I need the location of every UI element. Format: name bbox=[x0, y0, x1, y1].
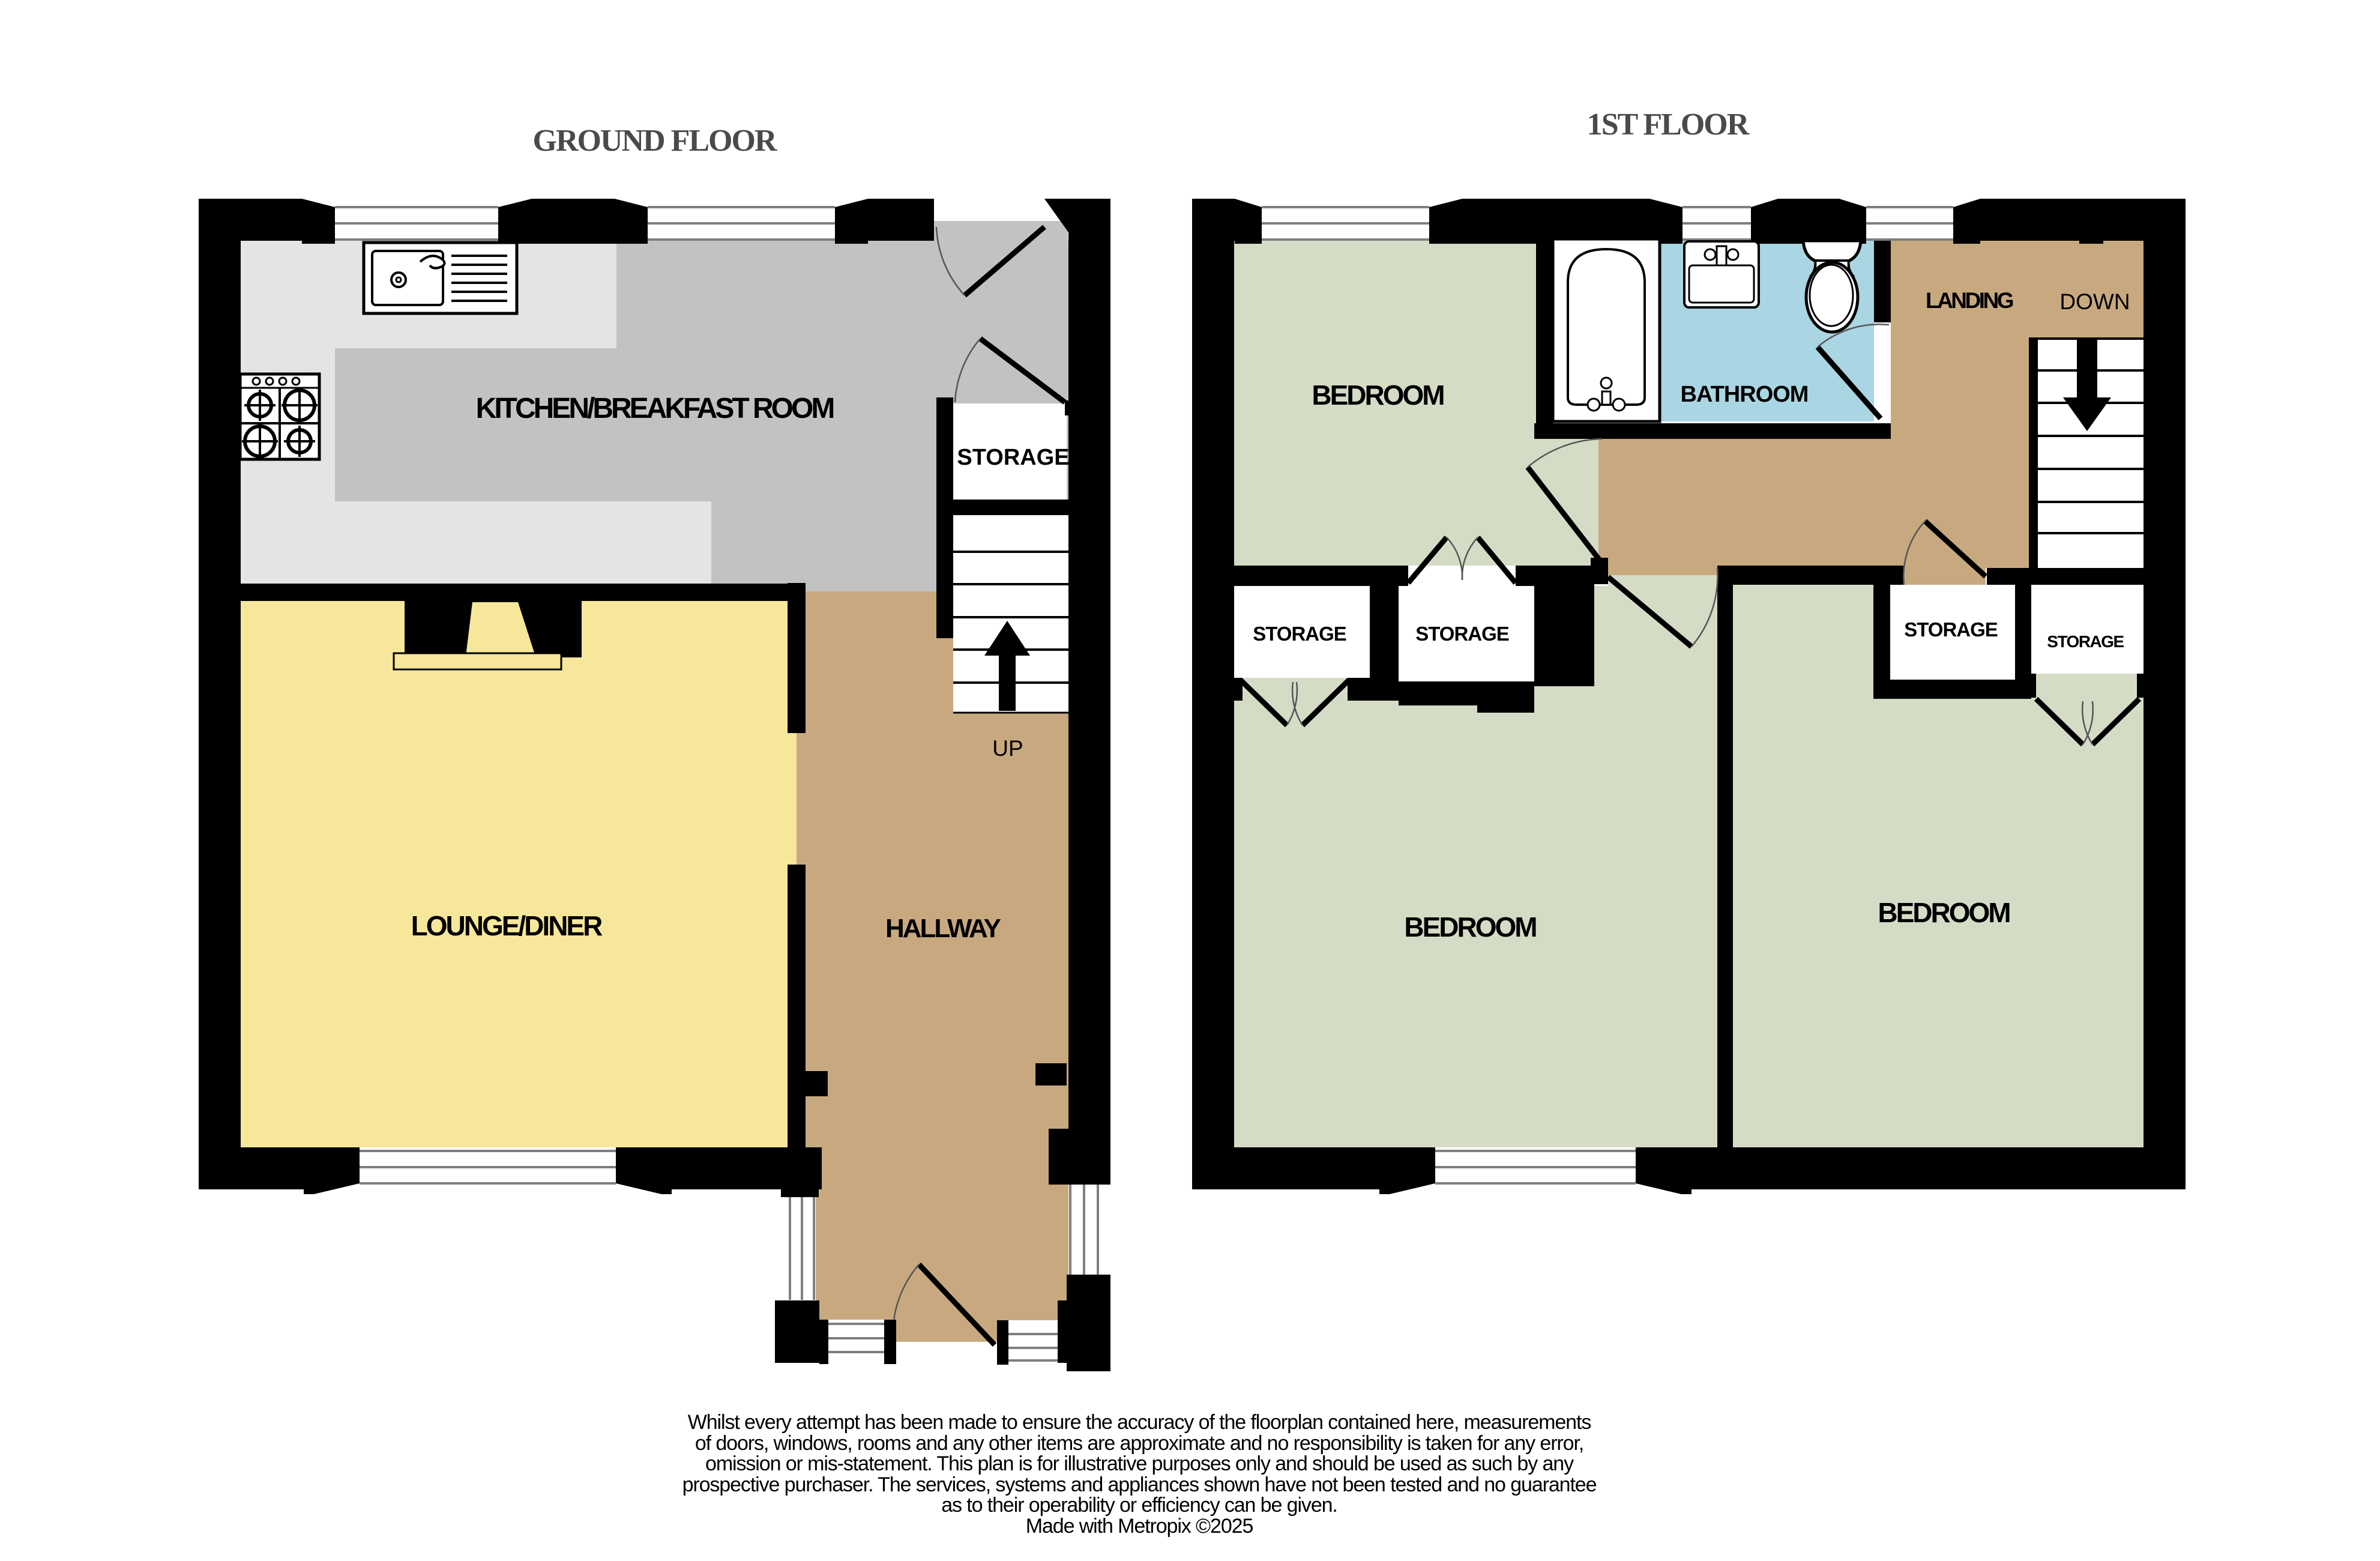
svg-text:as to their operability or eff: as to their operability or efficiency ca… bbox=[941, 1494, 1337, 1517]
svg-text:prospective purchaser. The ser: prospective purchaser. The services, sys… bbox=[682, 1473, 1597, 1496]
svg-text:LOUNGE/DINER: LOUNGE/DINER bbox=[411, 910, 603, 941]
svg-text:Made with Metropix ©2025: Made with Metropix ©2025 bbox=[1026, 1515, 1253, 1538]
svg-text:STORAGE: STORAGE bbox=[1904, 618, 1998, 641]
svg-text:STORAGE: STORAGE bbox=[1253, 623, 1346, 645]
svg-text:BEDROOM: BEDROOM bbox=[1404, 911, 1536, 943]
svg-text:BATHROOM: BATHROOM bbox=[1681, 382, 1809, 407]
svg-text:UP: UP bbox=[992, 736, 1023, 761]
svg-text:STORAGE: STORAGE bbox=[2047, 632, 2124, 651]
svg-text:1ST FLOOR: 1ST FLOOR bbox=[1587, 107, 1750, 142]
svg-text:DOWN: DOWN bbox=[2059, 289, 2130, 314]
svg-text:of doors, windows, rooms and a: of doors, windows, rooms and any other i… bbox=[695, 1432, 1583, 1455]
svg-text:HALLWAY: HALLWAY bbox=[885, 914, 1001, 943]
svg-text:Whilst every attempt has been: Whilst every attempt has been made to en… bbox=[688, 1411, 1591, 1434]
svg-text:GROUND FLOOR: GROUND FLOOR bbox=[533, 124, 778, 158]
svg-text:KITCHEN/BREAKFAST ROOM: KITCHEN/BREAKFAST ROOM bbox=[476, 393, 834, 424]
svg-text:STORAGE: STORAGE bbox=[957, 445, 1069, 470]
svg-text:BEDROOM: BEDROOM bbox=[1878, 897, 2010, 928]
svg-text:LANDING: LANDING bbox=[1926, 288, 2013, 313]
svg-text:omission or mis-statement. Thi: omission or mis-statement. This plan is … bbox=[705, 1452, 1574, 1475]
svg-text:BEDROOM: BEDROOM bbox=[1312, 379, 1444, 411]
svg-text:STORAGE: STORAGE bbox=[1415, 623, 1509, 645]
